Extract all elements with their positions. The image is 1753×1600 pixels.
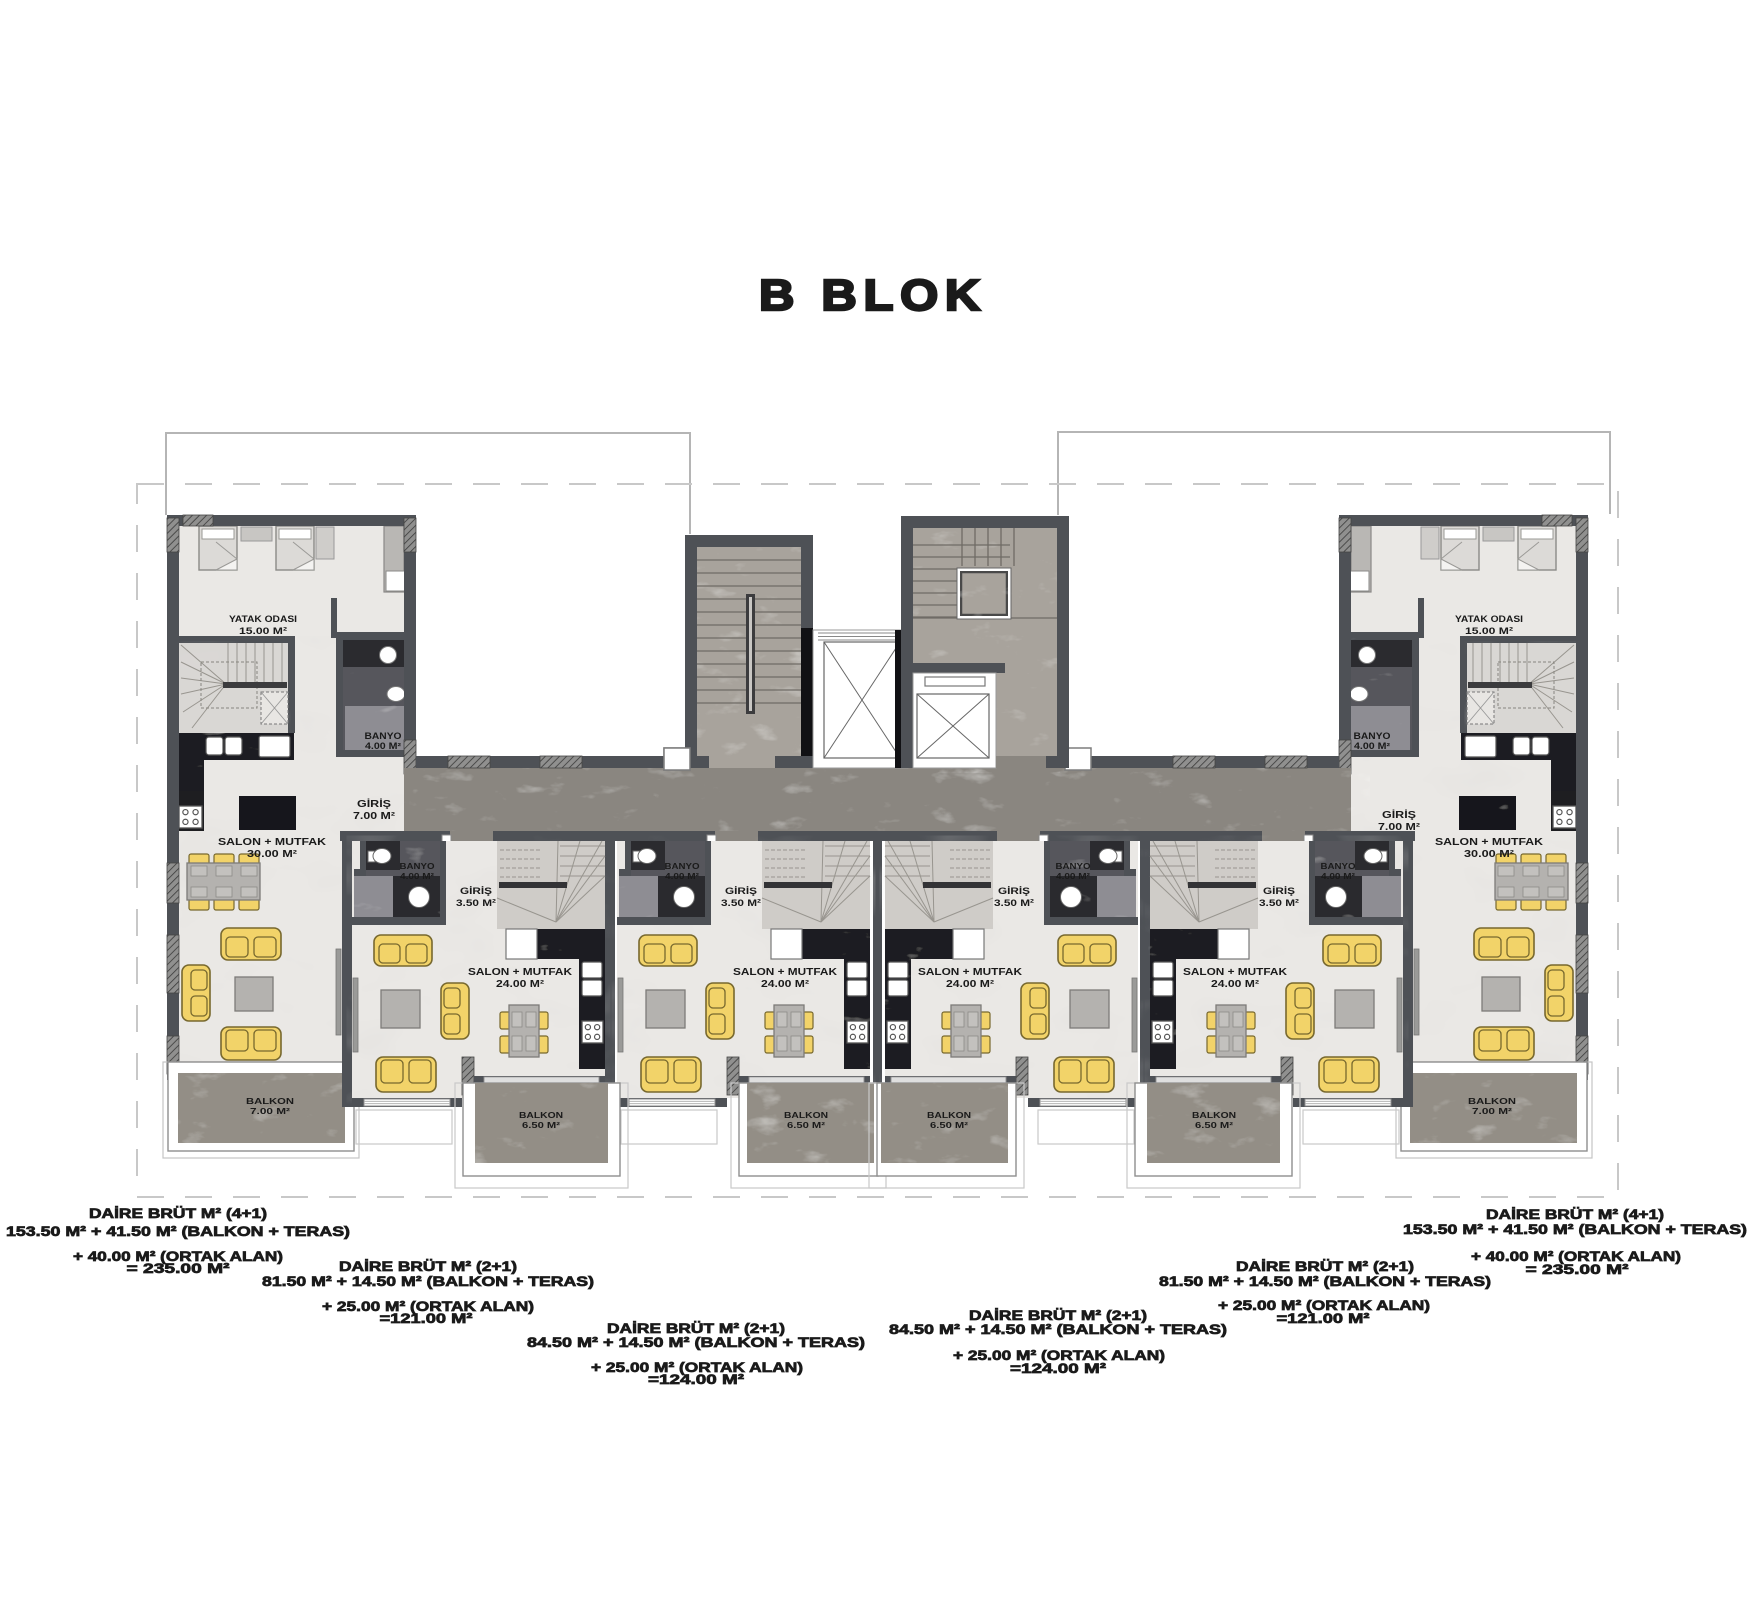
- svg-text:SALON + MUTFAK: SALON + MUTFAK: [1435, 837, 1544, 848]
- svg-text:4.00 M²: 4.00 M²: [1354, 741, 1390, 751]
- svg-text:BALKON: BALKON: [246, 1096, 294, 1106]
- svg-text:4.00 M²: 4.00 M²: [665, 871, 699, 881]
- svg-text:BANYO: BANYO: [365, 731, 402, 741]
- svg-text:BALKON: BALKON: [519, 1111, 563, 1120]
- svg-text:GİRİŞ: GİRİŞ: [1263, 886, 1295, 897]
- svg-text:24.00 M²: 24.00 M²: [946, 979, 995, 990]
- svg-text:YATAK ODASI: YATAK ODASI: [229, 614, 297, 625]
- svg-text:4.00 M²: 4.00 M²: [1321, 871, 1355, 881]
- svg-text:6.50 M²: 6.50 M²: [1195, 1121, 1233, 1130]
- svg-text:6.50 M²: 6.50 M²: [787, 1121, 825, 1130]
- svg-text:DAİRE BRÜT M² (4+1): DAİRE BRÜT M² (4+1): [89, 1205, 267, 1222]
- svg-text:4.00 M²: 4.00 M²: [1056, 871, 1090, 881]
- svg-text:3.50 M²: 3.50 M²: [721, 898, 761, 909]
- svg-text:= 235.00 M²: = 235.00 M²: [127, 1261, 230, 1277]
- svg-text:BALKON: BALKON: [927, 1111, 971, 1120]
- svg-text:153.50 M² + 41.50 M² (BALKON +: 153.50 M² + 41.50 M² (BALKON + TERAS): [1403, 1222, 1747, 1238]
- svg-text:YATAK ODASI: YATAK ODASI: [1455, 614, 1523, 625]
- svg-text:4.00 M²: 4.00 M²: [400, 871, 434, 881]
- svg-text:SALON + MUTFAK: SALON + MUTFAK: [918, 967, 1023, 978]
- svg-text:15.00 M²: 15.00 M²: [1465, 626, 1513, 637]
- svg-text:7.00 M²: 7.00 M²: [1378, 822, 1421, 833]
- svg-text:GİRİŞ: GİRİŞ: [460, 886, 492, 897]
- svg-text:B BLOK: B BLOK: [759, 271, 987, 320]
- svg-text:BANYO: BANYO: [1354, 731, 1391, 741]
- svg-text:=121.00 M²: =121.00 M²: [1277, 1311, 1370, 1327]
- svg-text:81.50 M² + 14.50 M² (BALKON +: 81.50 M² + 14.50 M² (BALKON + TERAS): [1159, 1274, 1491, 1290]
- svg-text:BANYO: BANYO: [1056, 861, 1091, 871]
- svg-text:GİRİŞ: GİRİŞ: [357, 797, 391, 810]
- svg-text:30.00 M²: 30.00 M²: [247, 849, 298, 860]
- svg-text:BANYO: BANYO: [665, 861, 700, 871]
- svg-text:84.50 M² + 14.50 M² (BALKON +: 84.50 M² + 14.50 M² (BALKON + TERAS): [889, 1322, 1227, 1338]
- svg-text:7.00 M²: 7.00 M²: [353, 811, 396, 822]
- svg-text:3.50 M²: 3.50 M²: [456, 898, 496, 909]
- svg-text:3.50 M²: 3.50 M²: [994, 898, 1034, 909]
- svg-text:7.00 M²: 7.00 M²: [250, 1106, 290, 1116]
- svg-text:GİRİŞ: GİRİŞ: [998, 886, 1030, 897]
- svg-text:GİRİŞ: GİRİŞ: [725, 886, 757, 897]
- svg-text:24.00 M²: 24.00 M²: [496, 979, 545, 990]
- svg-text:153.50 M² + 41.50 M² (BALKON +: 153.50 M² + 41.50 M² (BALKON + TERAS): [6, 1224, 350, 1240]
- svg-text:DAİRE BRÜT M² (4+1): DAİRE BRÜT M² (4+1): [1486, 1206, 1664, 1223]
- svg-text:6.50 M²: 6.50 M²: [930, 1121, 968, 1130]
- svg-text:SALON + MUTFAK: SALON + MUTFAK: [733, 967, 838, 978]
- svg-text:3.50 M²: 3.50 M²: [1259, 898, 1299, 909]
- svg-text:= 235.00 M²: = 235.00 M²: [1526, 1262, 1629, 1278]
- svg-text:BALKON: BALKON: [1192, 1111, 1236, 1120]
- svg-text:81.50 M² + 14.50 M² (BALKON +: 81.50 M² + 14.50 M² (BALKON + TERAS): [262, 1274, 594, 1290]
- svg-text:4.00 M²: 4.00 M²: [365, 741, 401, 751]
- svg-text:=124.00 M²: =124.00 M²: [648, 1372, 744, 1388]
- svg-text:DAİRE BRÜT M² (2+1): DAİRE BRÜT M² (2+1): [339, 1258, 517, 1275]
- svg-text:SALON + MUTFAK: SALON + MUTFAK: [218, 837, 327, 848]
- svg-text:15.00 M²: 15.00 M²: [239, 626, 287, 637]
- svg-text:6.50 M²: 6.50 M²: [522, 1121, 560, 1130]
- svg-text:=121.00 M²: =121.00 M²: [380, 1311, 473, 1327]
- svg-text:SALON + MUTFAK: SALON + MUTFAK: [1183, 967, 1288, 978]
- svg-text:24.00 M²: 24.00 M²: [761, 979, 810, 990]
- svg-text:=124.00 M²: =124.00 M²: [1010, 1361, 1106, 1377]
- svg-text:GİRİŞ: GİRİŞ: [1382, 808, 1416, 821]
- svg-text:BANYO: BANYO: [1321, 861, 1356, 871]
- svg-text:SALON + MUTFAK: SALON + MUTFAK: [468, 967, 573, 978]
- svg-text:BALKON: BALKON: [784, 1111, 828, 1120]
- svg-text:84.50 M² + 14.50 M² (BALKON +: 84.50 M² + 14.50 M² (BALKON + TERAS): [527, 1335, 865, 1351]
- svg-text:DAİRE BRÜT M² (2+1): DAİRE BRÜT M² (2+1): [1236, 1258, 1414, 1275]
- svg-text:7.00 M²: 7.00 M²: [1472, 1106, 1512, 1116]
- svg-text:BALKON: BALKON: [1468, 1096, 1516, 1106]
- svg-text:24.00 M²: 24.00 M²: [1211, 979, 1260, 990]
- svg-text:BANYO: BANYO: [400, 861, 435, 871]
- svg-text:30.00 M²: 30.00 M²: [1464, 849, 1515, 860]
